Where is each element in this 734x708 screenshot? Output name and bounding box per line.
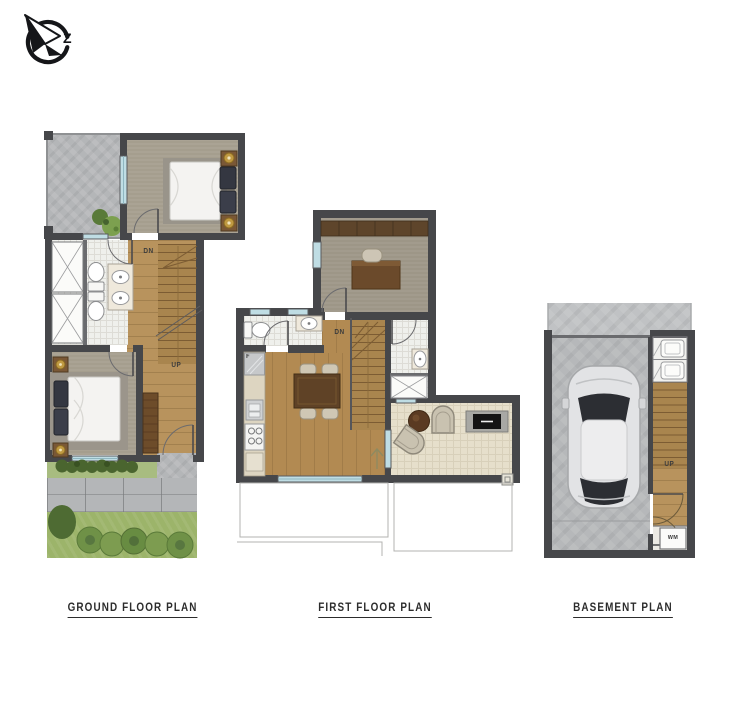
closet-partition <box>83 240 87 345</box>
first-closet <box>391 376 427 398</box>
toilet-icon <box>88 263 104 321</box>
first-bathroom-right-fixtures <box>412 349 428 369</box>
car-icon <box>562 366 646 508</box>
garden-trees <box>48 505 193 558</box>
dining-set <box>294 364 340 419</box>
fridge-label: F <box>246 354 250 360</box>
study-furniture <box>321 221 428 289</box>
kitchen-counter <box>244 352 265 476</box>
first-floor-plan <box>236 210 520 556</box>
terrace-outline <box>237 483 512 556</box>
wall-post <box>44 131 53 140</box>
terrace-plant-icon <box>92 209 122 236</box>
north-arrow-compass-icon <box>25 15 67 62</box>
first-stair-down-label: DN <box>334 329 344 336</box>
first-floor-caption: FIRST FLOOR PLAN <box>300 598 450 618</box>
washing-machine-label: WM <box>661 535 685 541</box>
first-bathroom-left-fixtures <box>244 316 322 338</box>
ground-stairs <box>156 246 202 362</box>
ground-floor-plan <box>44 131 245 558</box>
stair-railing <box>350 318 352 430</box>
double-sink-vanity <box>108 264 133 310</box>
compass-direction-letter: Z <box>63 30 72 46</box>
basement-stair-up-label: UP <box>664 461 674 468</box>
ground-floor-caption: GROUND FLOOR PLAN <box>53 598 213 618</box>
basement-plan <box>544 303 695 558</box>
living-furniture <box>394 406 513 485</box>
up-arrow-icon <box>371 449 383 469</box>
garage-door <box>552 335 650 338</box>
first-stairs <box>352 322 385 428</box>
bedroom2-bed <box>50 357 128 457</box>
wardrobe-closets <box>52 242 83 343</box>
floor-plan-sheet: Z DN UP DN F UP WM GROUND FLOOR PLAN FIR… <box>0 0 734 708</box>
hall-wardrobe <box>143 393 158 453</box>
ground-stair-up-label: UP <box>171 362 181 369</box>
ground-stair-down-label: DN <box>143 248 153 255</box>
basement-caption: BASEMENT PLAN <box>545 598 700 618</box>
bedroom1-bed <box>163 151 237 231</box>
utility-units <box>653 337 687 382</box>
